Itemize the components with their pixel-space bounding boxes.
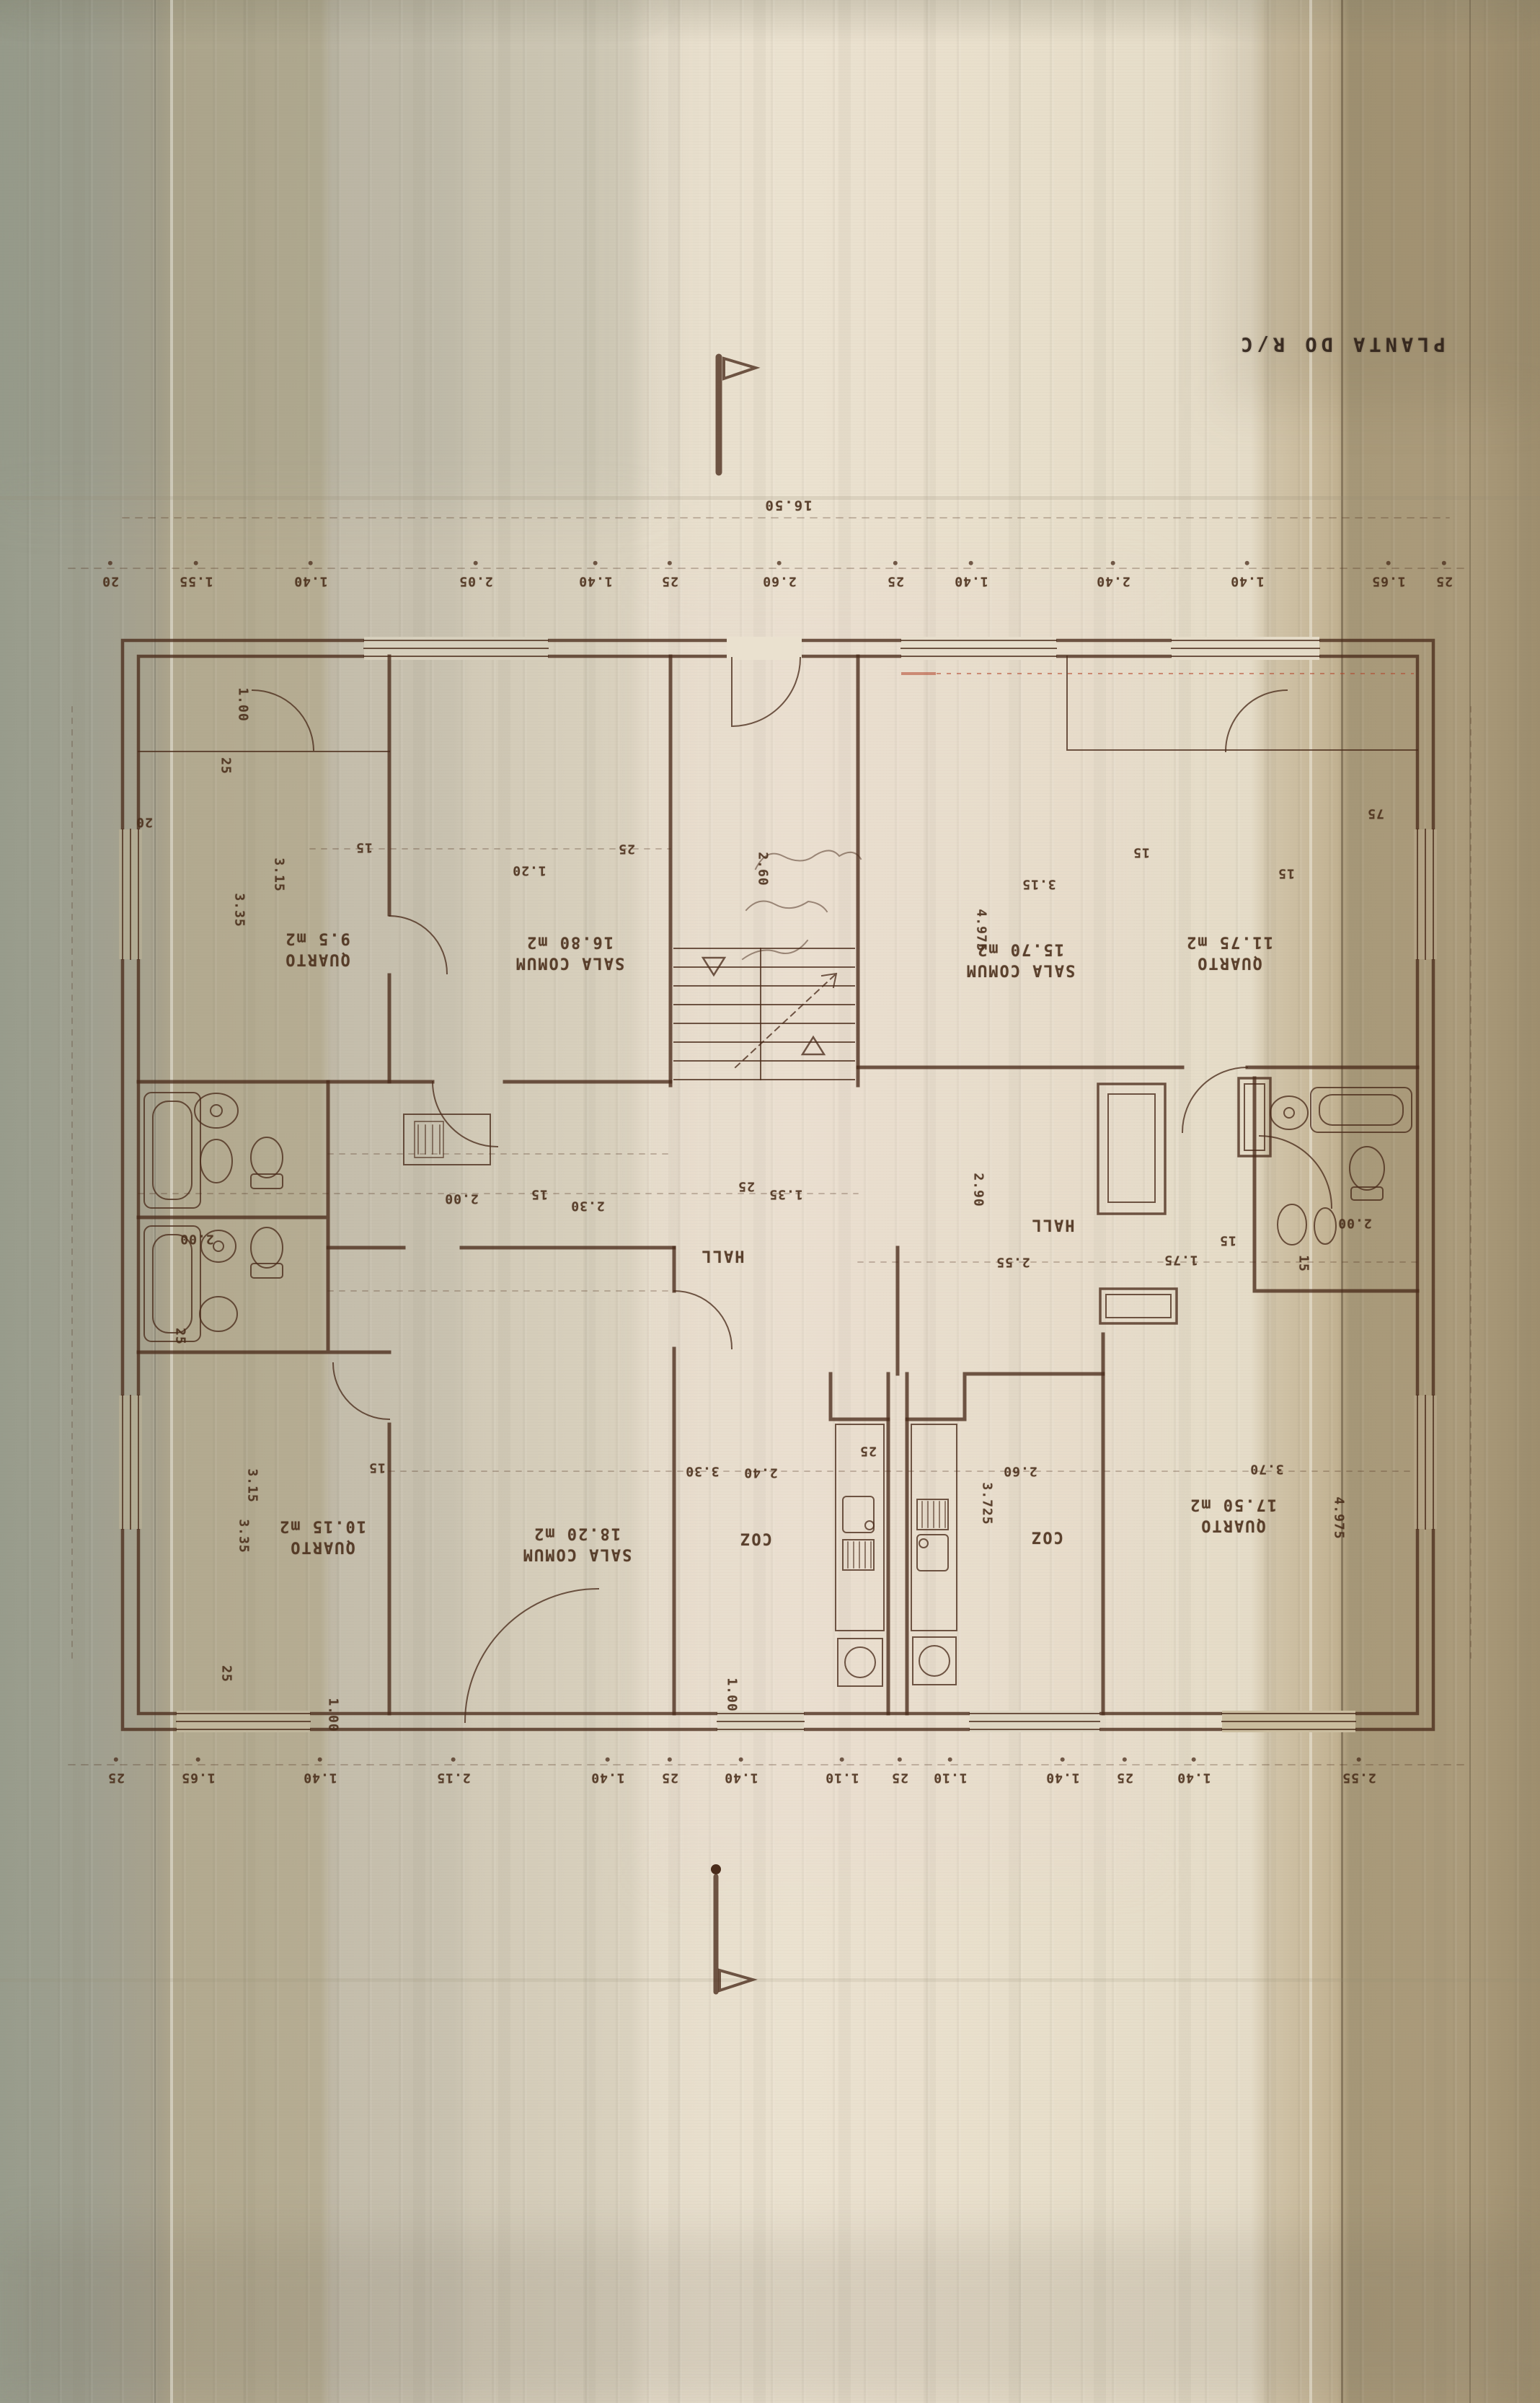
dimension-top-chain: 25 (1435, 573, 1453, 589)
dimension-top-chain: 2.05 (459, 573, 492, 589)
dimension-label: 15 (1278, 865, 1295, 881)
room-label: QUARTO 10.15 m2 (278, 1515, 366, 1556)
dimension-label: 1.20 (512, 862, 546, 878)
dimension-bottom-chain: 1.40 (1045, 1769, 1079, 1786)
dimension-label: 2.40 (743, 1464, 777, 1481)
dimension-top-chain: 1.40 (954, 573, 988, 589)
dimension-top-chain: 25 (887, 573, 904, 589)
dimension-label: 3.70 (1249, 1460, 1283, 1477)
section-cut-marker-top (719, 357, 756, 472)
dimension-bottom-chain: 2.55 (1342, 1769, 1376, 1786)
scanned-floorplan-sheet: PLANTA DO R/C QUARTO 9.5 m2SALA COMUM 16… (0, 0, 1540, 2403)
dimension-label: 15 (1295, 1255, 1311, 1272)
dimension-label: 25 (218, 1665, 234, 1683)
dimension-top-chain: 1.40 (578, 573, 612, 589)
dimension-label: 2.55 (996, 1253, 1030, 1270)
dimension-label: 3.15 (270, 857, 287, 891)
dimension-label: 4.975 (1330, 1496, 1347, 1539)
dimension-label: 1.00 (324, 1698, 341, 1732)
staircase (674, 948, 854, 1080)
dimension-label: 2.60 (1003, 1463, 1037, 1479)
dimension-bottom-chain: 1.10 (825, 1769, 859, 1786)
dimension-top-chain: 25 (661, 573, 678, 589)
dimension-label: 3.15 (244, 1468, 260, 1502)
room-label: COZ (739, 1527, 772, 1548)
section-cut-marker-bottom (711, 1864, 753, 1992)
dimension-top-chain: 2.40 (1096, 573, 1130, 589)
room-label: SALA COMUM 16.80 m2 (515, 931, 624, 972)
dimension-label: 2.00 (1337, 1214, 1371, 1231)
dimension-label: 15 (368, 1459, 386, 1476)
dimension-label: 25 (738, 1178, 755, 1194)
dimension-bottom-chain: 25 (661, 1769, 678, 1786)
room-label: SALA COMUM 18.20 m2 (522, 1522, 632, 1564)
room-label: HALL (1031, 1214, 1075, 1235)
dimension-top-chain: 1.55 (179, 573, 213, 589)
dimension-label: 25 (217, 757, 234, 775)
room-label: QUARTO 11.75 m2 (1185, 931, 1273, 972)
dimension-lines (68, 518, 1471, 1765)
dimension-bottom-chain: 1.40 (303, 1769, 337, 1786)
dimension-label: 15 (1219, 1232, 1236, 1248)
dimension-label: 3.30 (685, 1463, 719, 1479)
dimension-label: 2.00 (180, 1230, 213, 1247)
room-label: COZ (1030, 1526, 1063, 1547)
room-label: HALL (701, 1245, 745, 1266)
dimension-bottom-chain: 2.15 (436, 1769, 470, 1786)
dimension-label: 3.725 (978, 1482, 995, 1525)
dimension-bottom-chain: 1.40 (724, 1769, 758, 1786)
dimension-label: 1.75 (1164, 1251, 1198, 1268)
dimension-label: 2.90 (970, 1173, 986, 1207)
dimension-bottom-chain: 25 (1116, 1769, 1133, 1786)
dimension-label: 1.00 (234, 687, 251, 721)
dimension-label: 25 (172, 1328, 188, 1345)
dimension-label: 75 (1367, 805, 1384, 821)
dimension-top-chain: 1.40 (293, 573, 327, 589)
room-label: QUARTO 9.5 m2 (284, 927, 350, 969)
room-label: QUARTO 17.50 m2 (1189, 1494, 1277, 1535)
dimension-label: 20 (136, 814, 153, 830)
kitchen-fixtures (404, 1114, 957, 1686)
overall-dimension: 16.50 (764, 496, 812, 514)
dimension-bottom-chain: 1.10 (933, 1769, 967, 1786)
stair-direction-up-icon (802, 1037, 824, 1054)
dimension-label: 1.35 (769, 1186, 802, 1202)
dimension-label: 2.00 (444, 1190, 478, 1207)
dimension-label: 15 (355, 839, 373, 855)
dimension-top-chain: 20 (102, 573, 119, 589)
dimension-label: 3.15 (1022, 876, 1056, 892)
dimension-top-chain: 1.40 (1230, 573, 1264, 589)
dimension-bottom-chain: 1.65 (181, 1769, 215, 1786)
dimension-label: 15 (1133, 844, 1150, 860)
dimension-label: 25 (859, 1442, 877, 1459)
dimension-bottom-chain: 1.40 (590, 1769, 624, 1786)
dimension-label: 3.35 (235, 1519, 252, 1553)
dimension-label: 4.975 (973, 909, 989, 951)
dimension-bottom-chain: 25 (107, 1769, 125, 1786)
drawing-title: PLANTA DO R/C (1236, 333, 1445, 356)
dimension-label: 2.60 (754, 852, 771, 886)
window-symbols (119, 637, 1437, 1732)
dimension-label: 3.35 (231, 893, 247, 927)
dimension-label: 2.30 (570, 1197, 604, 1214)
dimension-label: 1.00 (723, 1677, 740, 1711)
dimension-top-chain: 1.65 (1371, 573, 1405, 589)
dimension-bottom-chain: 25 (891, 1769, 908, 1786)
dimension-label: 25 (618, 840, 635, 857)
dimension-top-chain: 2.60 (762, 573, 796, 589)
dimension-label: 15 (531, 1186, 548, 1202)
dimension-bottom-chain: 1.40 (1177, 1769, 1211, 1786)
exterior-walls (123, 640, 1433, 1729)
